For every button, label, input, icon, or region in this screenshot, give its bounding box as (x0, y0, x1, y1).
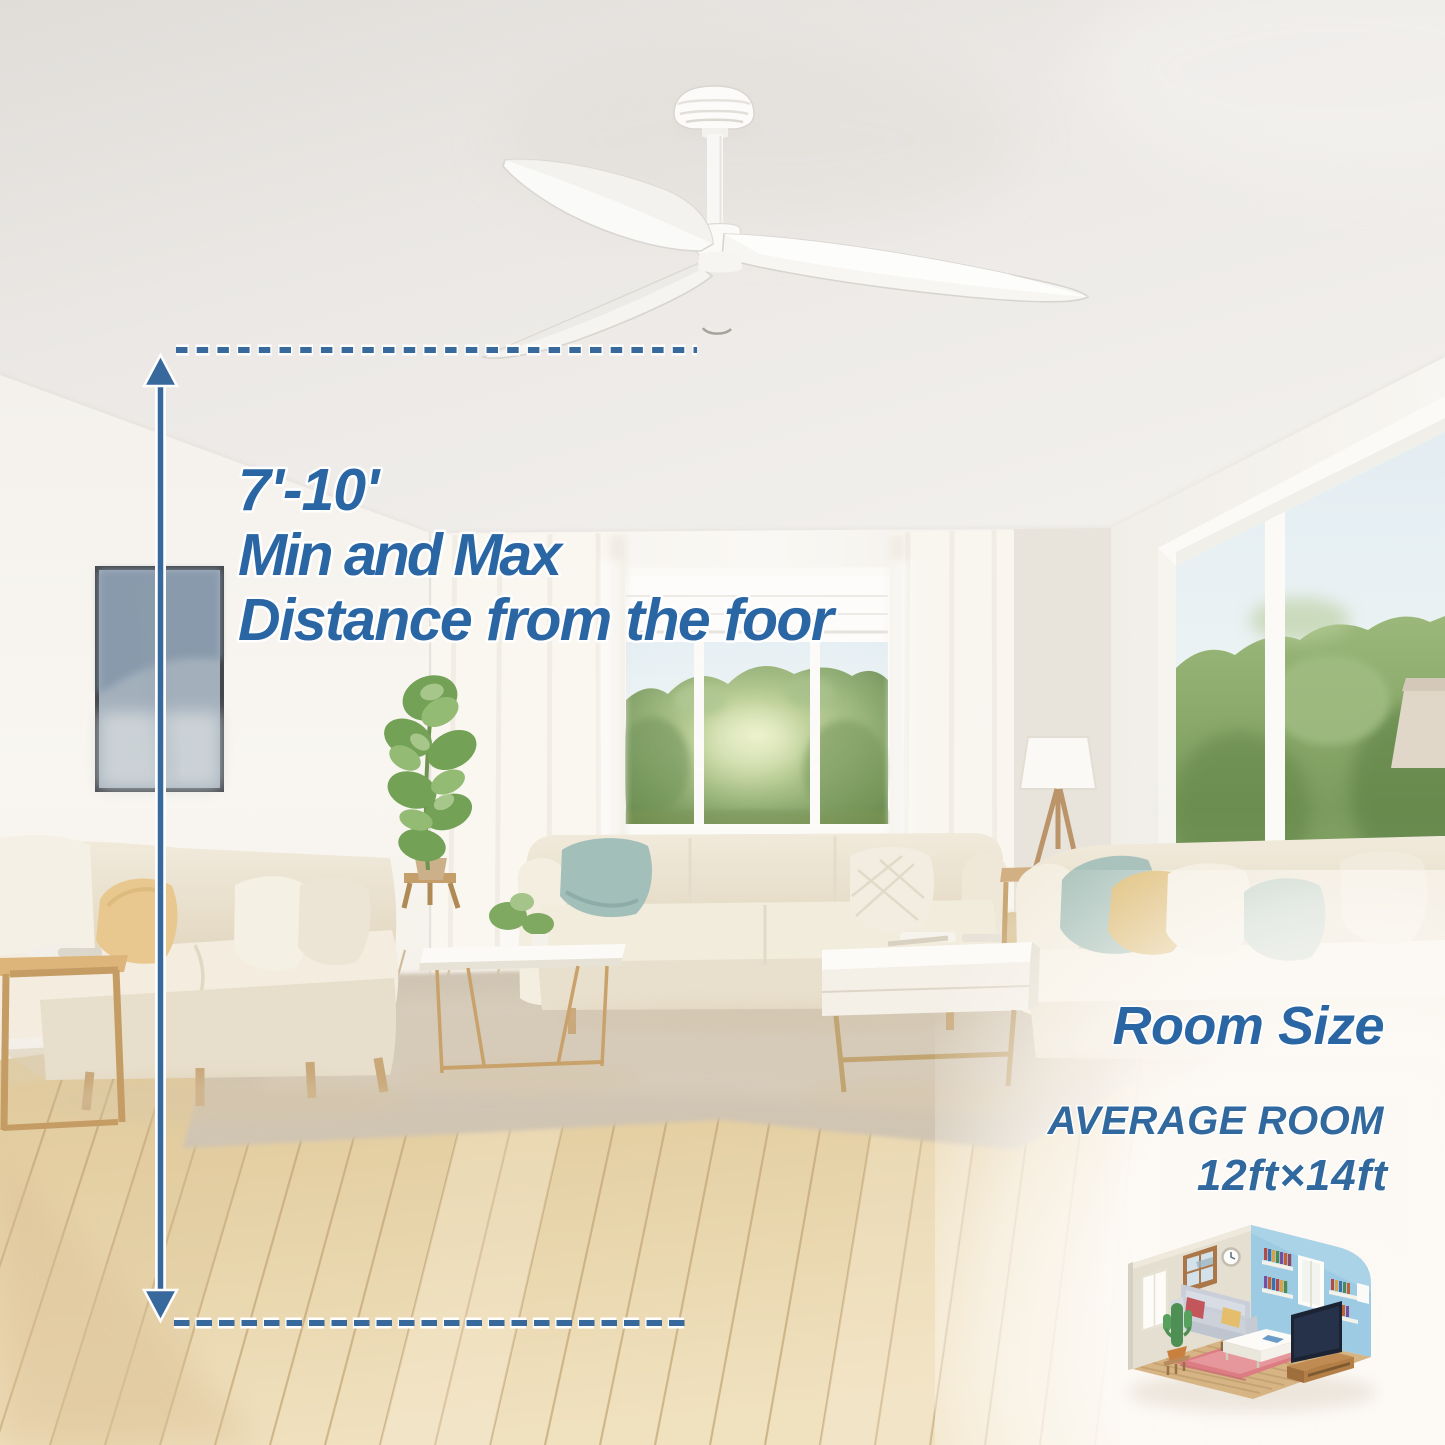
svg-text:Distance from the foor: Distance from the foor (238, 587, 837, 653)
svg-text:12ft×14ft: 12ft×14ft (1197, 1151, 1390, 1200)
svg-text:7'-10': 7'-10' (238, 457, 381, 523)
svg-text:AVERAGE ROOM: AVERAGE ROOM (1047, 1099, 1386, 1143)
svg-text:Room Size: Room Size (1112, 996, 1384, 1056)
svg-text:Min and Max: Min and Max (238, 522, 564, 588)
